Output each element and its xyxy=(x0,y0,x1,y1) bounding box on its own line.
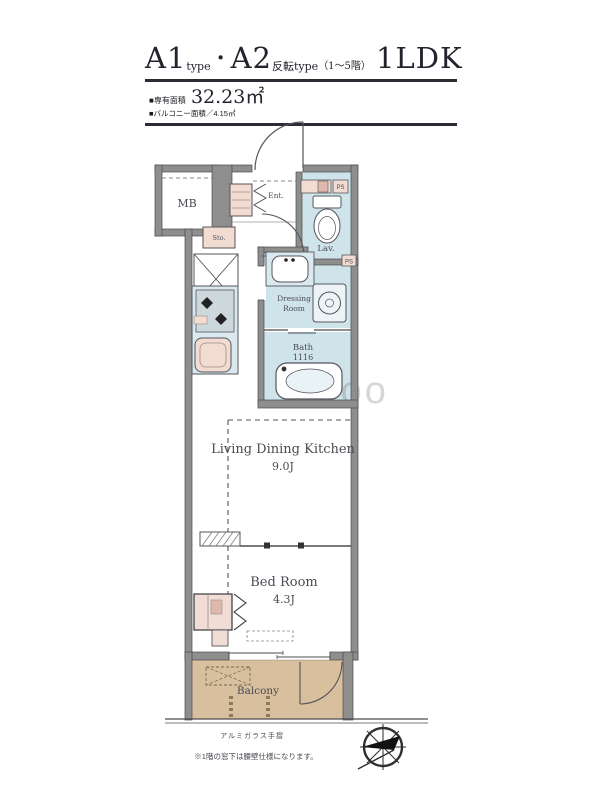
toilet-tank-icon xyxy=(313,196,341,208)
entrance-area: Ent. xyxy=(230,181,297,222)
entrance-door-icon xyxy=(255,122,303,170)
washing-machine-icon xyxy=(313,284,346,322)
wall-segment xyxy=(351,165,358,660)
room-label-bath-2: 1116 xyxy=(293,353,313,362)
compass-icon xyxy=(358,724,406,770)
window-annotation-box xyxy=(247,631,293,641)
floorplan-page: A1type・A2反転type（1～5階） 1LDK ■専有面積 32.23㎡ … xyxy=(0,0,600,800)
room-label-dressing-1: Dressing xyxy=(277,294,311,303)
ps-label: PS xyxy=(336,185,344,191)
bathtub-basin xyxy=(286,369,334,393)
bath-faucet-dot xyxy=(282,367,287,372)
stove-icon xyxy=(196,290,234,332)
room-label-mb: MB xyxy=(177,197,196,210)
closet-shelf xyxy=(211,600,222,614)
ldk-room: Living Dining Kitchen 9.0J xyxy=(211,420,355,596)
railing-note: アルミガラス手摺 xyxy=(220,731,284,740)
partition-hatch-box xyxy=(200,532,240,546)
ps-label: PS xyxy=(345,260,353,266)
wall-segment xyxy=(185,229,192,660)
door-swing-arc xyxy=(255,122,303,170)
closet-lower-box xyxy=(212,630,228,646)
wall-segment xyxy=(155,165,162,236)
wall-segment xyxy=(258,400,358,408)
room-label-lav: Lav. xyxy=(317,244,334,254)
room-label-ldk-2: 9.0J xyxy=(272,460,294,473)
partition-tick xyxy=(298,543,304,549)
wall-segment xyxy=(185,652,192,720)
room-label-bath-1: Bath xyxy=(293,343,314,353)
room-label-balcony: Balcony xyxy=(237,685,279,697)
room-label-dressing-2: Room xyxy=(283,304,305,313)
bedroom: Bed Room 4.3J xyxy=(194,575,318,646)
lav-cabinet xyxy=(318,181,328,192)
room-label-ent: Ent. xyxy=(268,191,284,200)
balcony-window-icon xyxy=(229,651,330,660)
door-opening xyxy=(256,266,266,300)
room-label-sto: Sto. xyxy=(213,234,226,242)
faucet-dot xyxy=(284,258,288,262)
wall-segment xyxy=(303,165,358,172)
faucet-dot xyxy=(291,258,295,262)
floorplan-canvas: looo MB xyxy=(0,0,600,800)
room-label-bed-1: Bed Room xyxy=(250,575,317,590)
kitchen-zone: Sto. xyxy=(192,227,238,374)
compass-needle xyxy=(362,736,400,750)
wall-segment xyxy=(232,165,252,172)
partition-tick xyxy=(264,543,270,549)
wall-segment xyxy=(212,165,232,236)
wall-segment xyxy=(343,652,353,720)
wall-segment xyxy=(155,165,219,172)
kitchen-tag xyxy=(194,316,207,324)
closet-folding-door-icon xyxy=(234,594,246,630)
toilet-bowl-icon xyxy=(314,209,340,243)
room-label-bed-2: 4.3J xyxy=(273,593,295,606)
room-label-ldk-1: Living Dining Kitchen xyxy=(211,442,355,457)
bedroom-partition xyxy=(200,532,351,549)
washbasin-icon xyxy=(272,256,308,282)
folding-door-icon xyxy=(254,184,266,212)
meter-box: MB xyxy=(162,178,212,210)
floor-note: ※1階の窓下は腰壁仕様になります。 xyxy=(194,751,317,761)
